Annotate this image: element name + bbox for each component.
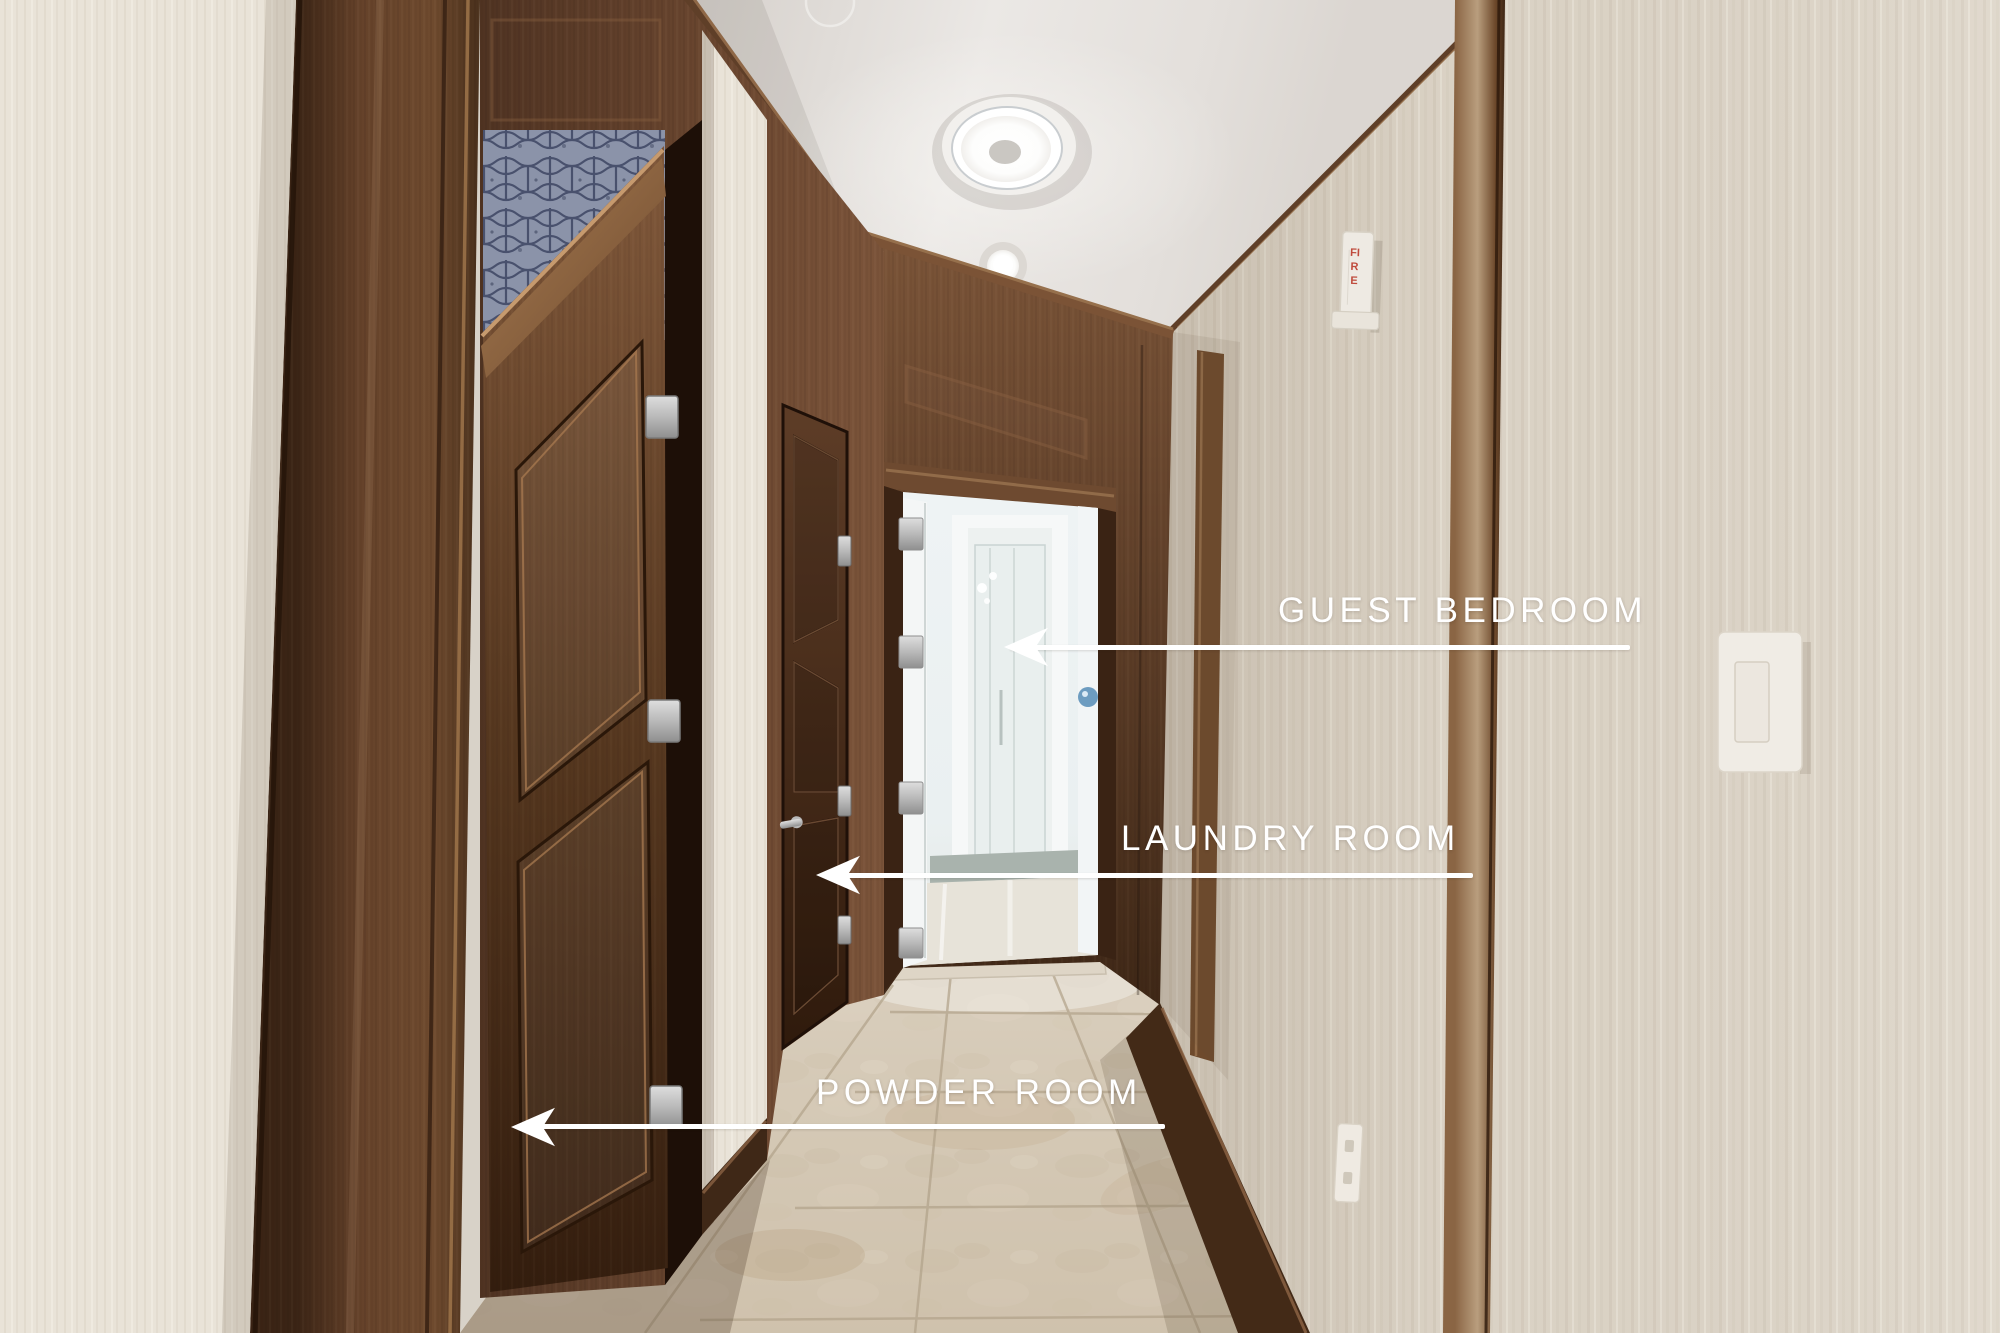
- light-switch: [1718, 632, 1811, 774]
- open-white-door-edge: [903, 498, 927, 968]
- left-wall: [0, 0, 884, 1333]
- room-floor: [903, 876, 1098, 966]
- hallway-scene: [0, 0, 2000, 1333]
- ceiling-light: [932, 94, 1092, 210]
- fire-alarm-label: FIRE: [1346, 246, 1362, 288]
- shower-glass: [975, 545, 1045, 860]
- end-wall: [851, 228, 1173, 1005]
- switch-rocker: [1735, 662, 1769, 742]
- laundry-room-arrow-line: [822, 873, 1473, 878]
- guest-bedroom-arrow-line: [1010, 645, 1630, 650]
- label-powder-room: POWDER ROOM: [816, 1075, 1142, 1110]
- laundry-room-door: [779, 405, 851, 1048]
- left-wallpaper: [0, 0, 296, 1333]
- wall-outlet: [1334, 1123, 1363, 1202]
- powder-room-door: [481, 146, 682, 1292]
- door-knob: [1078, 687, 1098, 707]
- label-laundry-room: LAUNDRY ROOM: [1121, 821, 1460, 856]
- powder-room-arrow-line: [517, 1124, 1165, 1129]
- label-guest-bedroom: GUEST BEDROOM: [1278, 593, 1647, 628]
- wallpaper-strip: [702, 30, 767, 1235]
- hallway-photo: GUEST BEDROOM LAUNDRY ROOM POWDER ROOM F…: [0, 0, 2000, 1333]
- guest-bedroom-doorway: [899, 492, 1098, 968]
